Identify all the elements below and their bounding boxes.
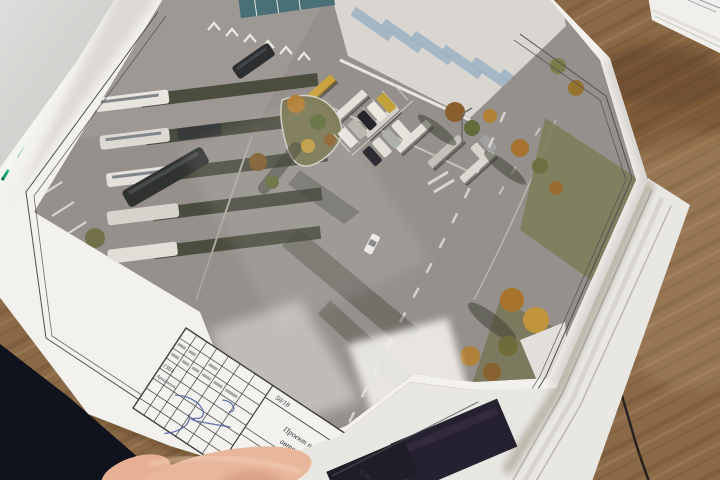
scene: "Сар…: [0, 0, 720, 480]
photo-of-architectural-plan-on-desk: "Сар…: [0, 0, 720, 480]
